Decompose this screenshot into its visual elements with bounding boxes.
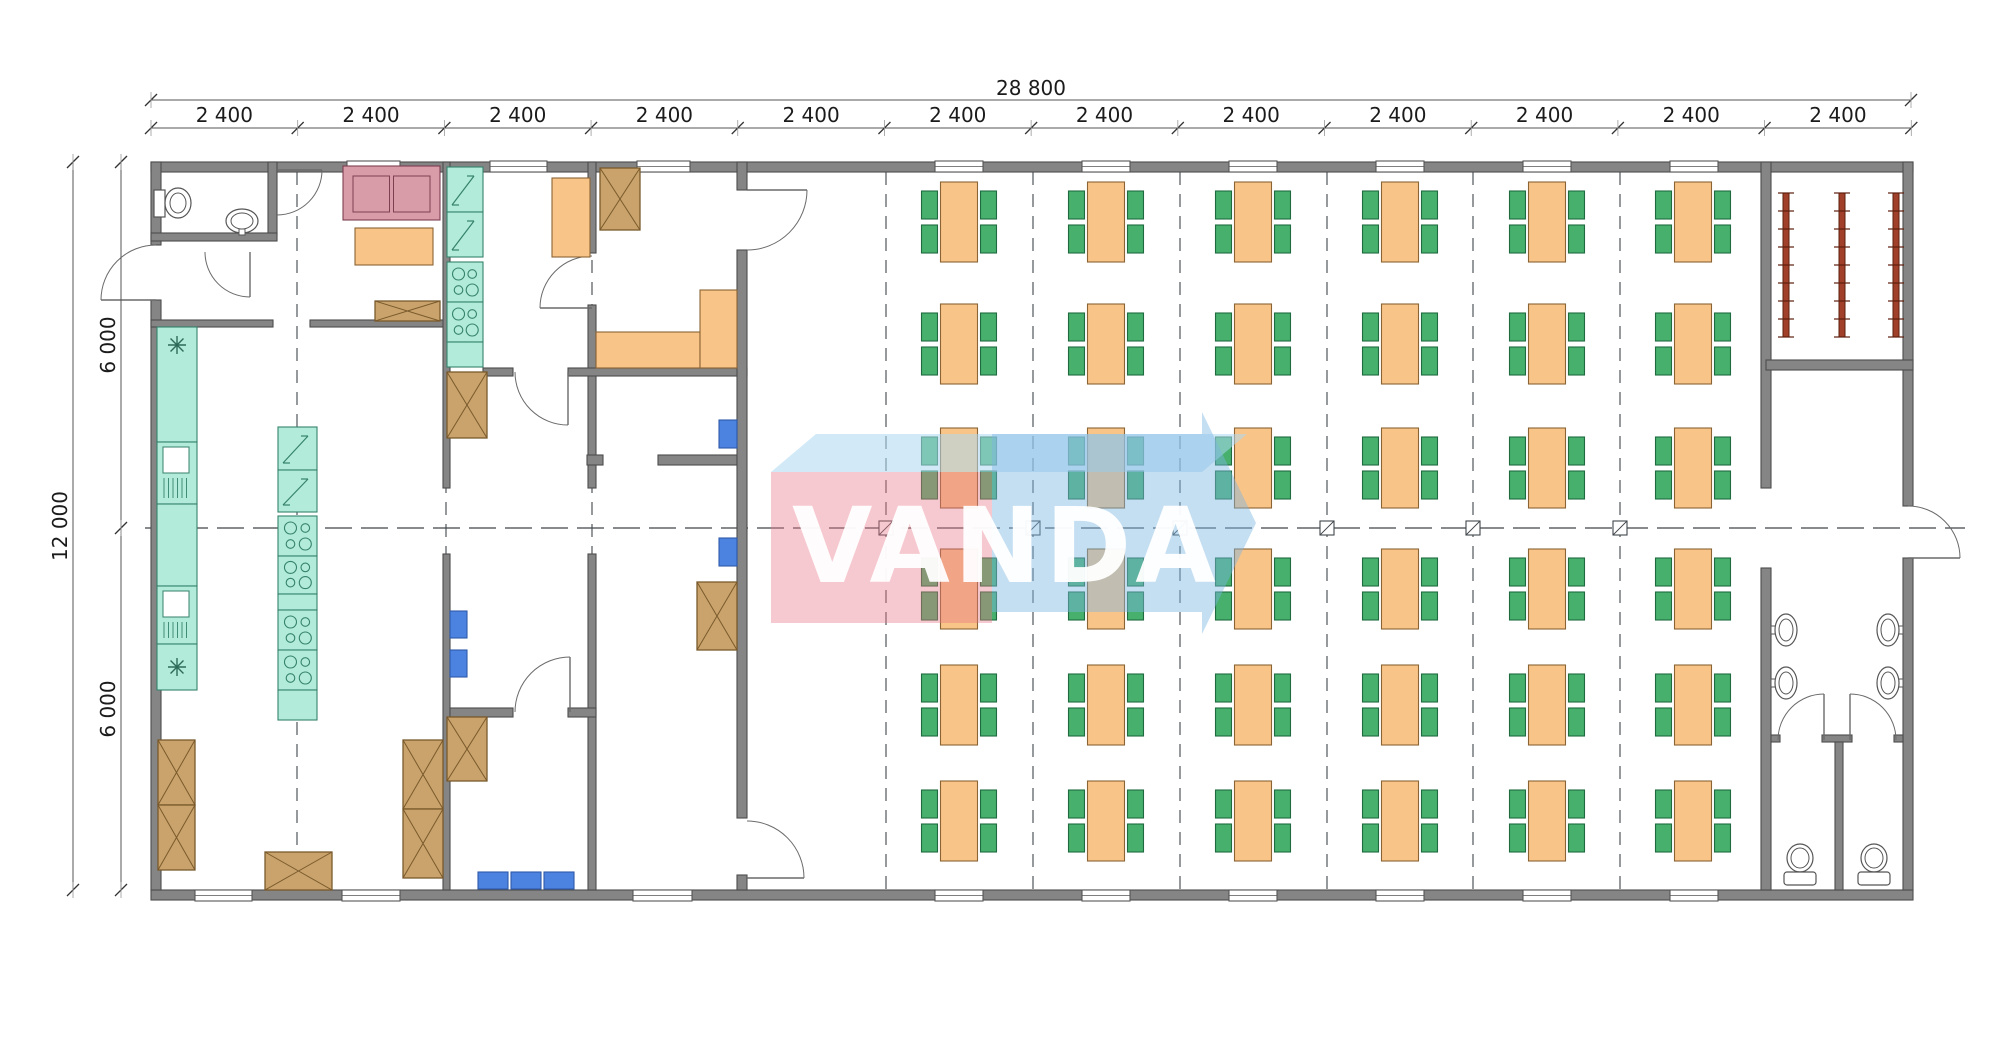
dining-table	[1675, 428, 1712, 508]
dining-table	[941, 182, 978, 262]
dining-chair	[1422, 437, 1438, 465]
dining-chair	[1656, 674, 1672, 702]
wall	[1835, 742, 1843, 890]
dim-height-segment-top-label: 6 000	[96, 316, 120, 373]
dining-chair	[1422, 790, 1438, 818]
dining-chair	[1715, 708, 1731, 736]
dining-table	[941, 781, 978, 861]
cooktop	[278, 556, 317, 594]
dining-table	[1088, 781, 1125, 861]
dining-chair	[1569, 225, 1585, 253]
dim-module-label: 2 400	[1809, 103, 1866, 127]
dining-table	[1675, 304, 1712, 384]
dining-chair	[1069, 708, 1085, 736]
dining-chair	[1510, 558, 1526, 586]
dining-chair	[981, 674, 997, 702]
dining-chair	[1216, 674, 1232, 702]
dining-table	[1675, 781, 1712, 861]
cooktop	[278, 610, 317, 650]
dining-chair	[1656, 824, 1672, 852]
door-swing	[1908, 506, 1960, 558]
dining-table	[1382, 549, 1419, 629]
dim-module-label: 2 400	[1369, 103, 1426, 127]
dining-chair	[981, 347, 997, 375]
dining-table	[1382, 781, 1419, 861]
dining-chair	[1069, 225, 1085, 253]
dining-chair	[1569, 824, 1585, 852]
dining-chair	[1363, 471, 1379, 499]
dining-chair	[1275, 558, 1291, 586]
dining-chair	[1422, 313, 1438, 341]
dining-chair	[1715, 191, 1731, 219]
door-swing	[515, 657, 570, 712]
dining-chair	[922, 225, 938, 253]
dining-chair	[1216, 790, 1232, 818]
wall	[151, 890, 1913, 900]
kitchen-counter	[447, 342, 483, 367]
wall	[568, 368, 747, 376]
dining-chair	[1363, 437, 1379, 465]
wall	[1903, 162, 1913, 506]
dining-chair	[1128, 313, 1144, 341]
dining-chair	[1422, 708, 1438, 736]
dining-chair	[1128, 708, 1144, 736]
dining-chair	[1422, 225, 1438, 253]
door-swing	[515, 372, 568, 425]
dim-total-width-label: 28 800	[996, 76, 1066, 100]
dining-chair	[1510, 437, 1526, 465]
dining-table	[1088, 304, 1125, 384]
dining-table	[1088, 665, 1125, 745]
dining-chair	[922, 674, 938, 702]
dim-module-label: 2 400	[929, 103, 986, 127]
chair	[450, 650, 467, 677]
dining-table	[1382, 304, 1419, 384]
dining-chair	[1656, 437, 1672, 465]
dining-chair	[1216, 708, 1232, 736]
door-swing	[747, 821, 804, 878]
dining-chair	[1656, 558, 1672, 586]
chair	[450, 611, 467, 638]
dim-module-label: 2 400	[782, 103, 839, 127]
dining-chair	[1275, 225, 1291, 253]
sink-basin	[163, 591, 189, 617]
dining-table	[1529, 665, 1566, 745]
dining-table	[1235, 304, 1272, 384]
table	[700, 290, 737, 368]
door-swing	[1778, 694, 1824, 740]
dining-chair	[1510, 347, 1526, 375]
wall	[1761, 568, 1771, 890]
dining-table	[941, 304, 978, 384]
dining-table	[1529, 428, 1566, 508]
dining-chair	[1363, 674, 1379, 702]
dining-chair	[1510, 708, 1526, 736]
dining-chair	[1422, 191, 1438, 219]
dining-chair	[1363, 592, 1379, 620]
chair	[511, 872, 541, 889]
chair	[719, 420, 737, 448]
dining-chair	[1128, 674, 1144, 702]
dining-chair	[1569, 790, 1585, 818]
dining-chair	[1422, 592, 1438, 620]
dining-chair	[1715, 790, 1731, 818]
dining-chair	[1656, 313, 1672, 341]
wall	[737, 875, 747, 890]
dining-chair	[981, 824, 997, 852]
dining-table	[1382, 665, 1419, 745]
chair	[544, 872, 574, 889]
dining-chair	[1216, 313, 1232, 341]
dining-chair	[1715, 674, 1731, 702]
dining-chair	[922, 708, 938, 736]
dining-chair	[1128, 824, 1144, 852]
dining-chair	[1275, 824, 1291, 852]
dining-chair	[1363, 347, 1379, 375]
dining-table	[1382, 428, 1419, 508]
chair	[478, 872, 508, 889]
cooktop	[278, 650, 317, 690]
dining-chair	[1715, 225, 1731, 253]
dining-chair	[922, 790, 938, 818]
dining-chair	[1569, 437, 1585, 465]
dining-chair	[1569, 191, 1585, 219]
chair	[719, 538, 737, 566]
wall	[151, 320, 273, 327]
dining-chair	[1656, 191, 1672, 219]
dining-chair	[1363, 824, 1379, 852]
door-swing	[747, 190, 807, 250]
wall	[588, 554, 596, 890]
dining-chair	[1422, 347, 1438, 375]
dining-chair	[1275, 790, 1291, 818]
dining-chair	[1275, 347, 1291, 375]
dining-chair	[1069, 674, 1085, 702]
dining-table	[1529, 182, 1566, 262]
dining-chair	[1715, 313, 1731, 341]
door-swing	[101, 245, 156, 300]
dining-chair	[1069, 191, 1085, 219]
wall	[1761, 162, 1771, 488]
table	[596, 332, 700, 368]
dining-chair	[1656, 790, 1672, 818]
dining-table	[1235, 182, 1272, 262]
dining-chair	[1363, 790, 1379, 818]
dining-table	[1235, 781, 1272, 861]
table	[552, 178, 590, 257]
wall	[568, 708, 596, 717]
dining-chair	[1569, 471, 1585, 499]
dining-chair	[1275, 471, 1291, 499]
kitchen-counter	[157, 504, 197, 586]
wall	[268, 162, 277, 235]
dining-table	[1675, 665, 1712, 745]
dining-chair	[1422, 674, 1438, 702]
wall	[1903, 558, 1913, 890]
wall	[737, 250, 747, 818]
basin-tap	[239, 229, 245, 235]
door-swing	[205, 252, 250, 297]
dim-module-label: 2 400	[342, 103, 399, 127]
dining-chair	[1569, 674, 1585, 702]
dining-table	[1529, 549, 1566, 629]
dim-module-label: 2 400	[1076, 103, 1133, 127]
dining-chair	[1569, 347, 1585, 375]
dining-chair	[981, 313, 997, 341]
dining-chair	[1510, 191, 1526, 219]
dining-table	[1675, 182, 1712, 262]
wall	[1822, 735, 1852, 742]
dim-module-label: 2 400	[196, 103, 253, 127]
dining-chair	[922, 347, 938, 375]
dining-chair	[922, 313, 938, 341]
dining-chair	[1069, 347, 1085, 375]
dining-chair	[1216, 347, 1232, 375]
dining-chair	[1510, 790, 1526, 818]
dining-chair	[1363, 191, 1379, 219]
toilet-tank	[1784, 872, 1816, 885]
dining-chair	[1275, 437, 1291, 465]
dim-module-label: 2 400	[1223, 103, 1280, 127]
dining-chair	[1715, 471, 1731, 499]
wall	[658, 455, 737, 465]
kitchen-counter	[278, 594, 317, 610]
dining-table	[1088, 182, 1125, 262]
dining-chair	[1715, 824, 1731, 852]
dining-chair	[1510, 824, 1526, 852]
dim-module-label: 2 400	[1663, 103, 1720, 127]
dining-chair	[1510, 471, 1526, 499]
door-swing	[1850, 694, 1896, 740]
dining-chair	[1128, 347, 1144, 375]
dining-chair	[1069, 313, 1085, 341]
dining-chair	[1510, 225, 1526, 253]
toilet	[154, 190, 165, 217]
dining-chair	[1656, 471, 1672, 499]
dim-height-segment-bottom-label: 6 000	[96, 680, 120, 737]
dining-chair	[981, 191, 997, 219]
dining-table	[1235, 665, 1272, 745]
dining-chair	[1216, 225, 1232, 253]
dining-chair	[1510, 674, 1526, 702]
dining-chair	[1656, 592, 1672, 620]
dining-table	[1529, 781, 1566, 861]
dining-chair	[1128, 225, 1144, 253]
dining-chair	[1422, 824, 1438, 852]
floor-plan-canvas: 28 800 2 4002 4002 4002 4002 4002 4002 4…	[0, 0, 2000, 1041]
cooktop	[447, 262, 483, 302]
dining-chair	[981, 225, 997, 253]
dining-chair	[1510, 313, 1526, 341]
dining-chair	[1569, 313, 1585, 341]
refrigerator	[278, 470, 317, 512]
dining-chair	[1275, 708, 1291, 736]
dining-chair	[1510, 592, 1526, 620]
dining-chair	[1656, 347, 1672, 375]
toilet-tank	[1858, 872, 1890, 885]
door-swing	[540, 256, 592, 308]
dining-chair	[1569, 592, 1585, 620]
dining-table	[1382, 182, 1419, 262]
dining-table	[1529, 304, 1566, 384]
wall	[587, 455, 603, 465]
dining-chair	[1275, 313, 1291, 341]
dining-chair	[1216, 191, 1232, 219]
door-swing	[277, 170, 322, 215]
wall	[737, 162, 747, 190]
dining-chair	[1275, 592, 1291, 620]
wall	[1766, 360, 1913, 370]
dining-chair	[1363, 558, 1379, 586]
dining-chair	[1715, 437, 1731, 465]
dining-chair	[1422, 471, 1438, 499]
dining-chair	[1569, 558, 1585, 586]
dining-chair	[1069, 824, 1085, 852]
dining-chair	[1569, 708, 1585, 736]
dining-chair	[1216, 824, 1232, 852]
dining-chair	[1363, 225, 1379, 253]
dim-module-label: 2 400	[1516, 103, 1573, 127]
dining-table	[1235, 549, 1272, 629]
dim-module-label: 2 400	[489, 103, 546, 127]
wall	[450, 708, 513, 717]
watermark-text: VANDA	[792, 492, 1192, 600]
dining-chair	[922, 191, 938, 219]
dining-chair	[1069, 790, 1085, 818]
dining-chair	[1275, 674, 1291, 702]
dining-chair	[1128, 790, 1144, 818]
dining-chair	[1715, 347, 1731, 375]
table	[355, 228, 433, 265]
cooktop	[447, 302, 483, 342]
dining-chair	[922, 824, 938, 852]
dining-chair	[1363, 313, 1379, 341]
dining-chair	[1715, 558, 1731, 586]
dining-chair	[1363, 708, 1379, 736]
dining-chair	[1715, 592, 1731, 620]
dim-module-label: 2 400	[636, 103, 693, 127]
sink-basin	[163, 447, 189, 473]
dining-chair	[981, 708, 997, 736]
kitchen-counter	[278, 690, 317, 720]
cooktop	[278, 516, 317, 556]
dining-table	[1675, 549, 1712, 629]
dim-total-height-label: 12 000	[48, 491, 72, 561]
dining-table	[941, 665, 978, 745]
dining-chair	[1656, 225, 1672, 253]
dining-chair	[1128, 191, 1144, 219]
dining-chair	[1422, 558, 1438, 586]
dining-chair	[1275, 191, 1291, 219]
dining-chair	[1656, 708, 1672, 736]
wall	[151, 233, 277, 241]
dining-chair	[981, 790, 997, 818]
